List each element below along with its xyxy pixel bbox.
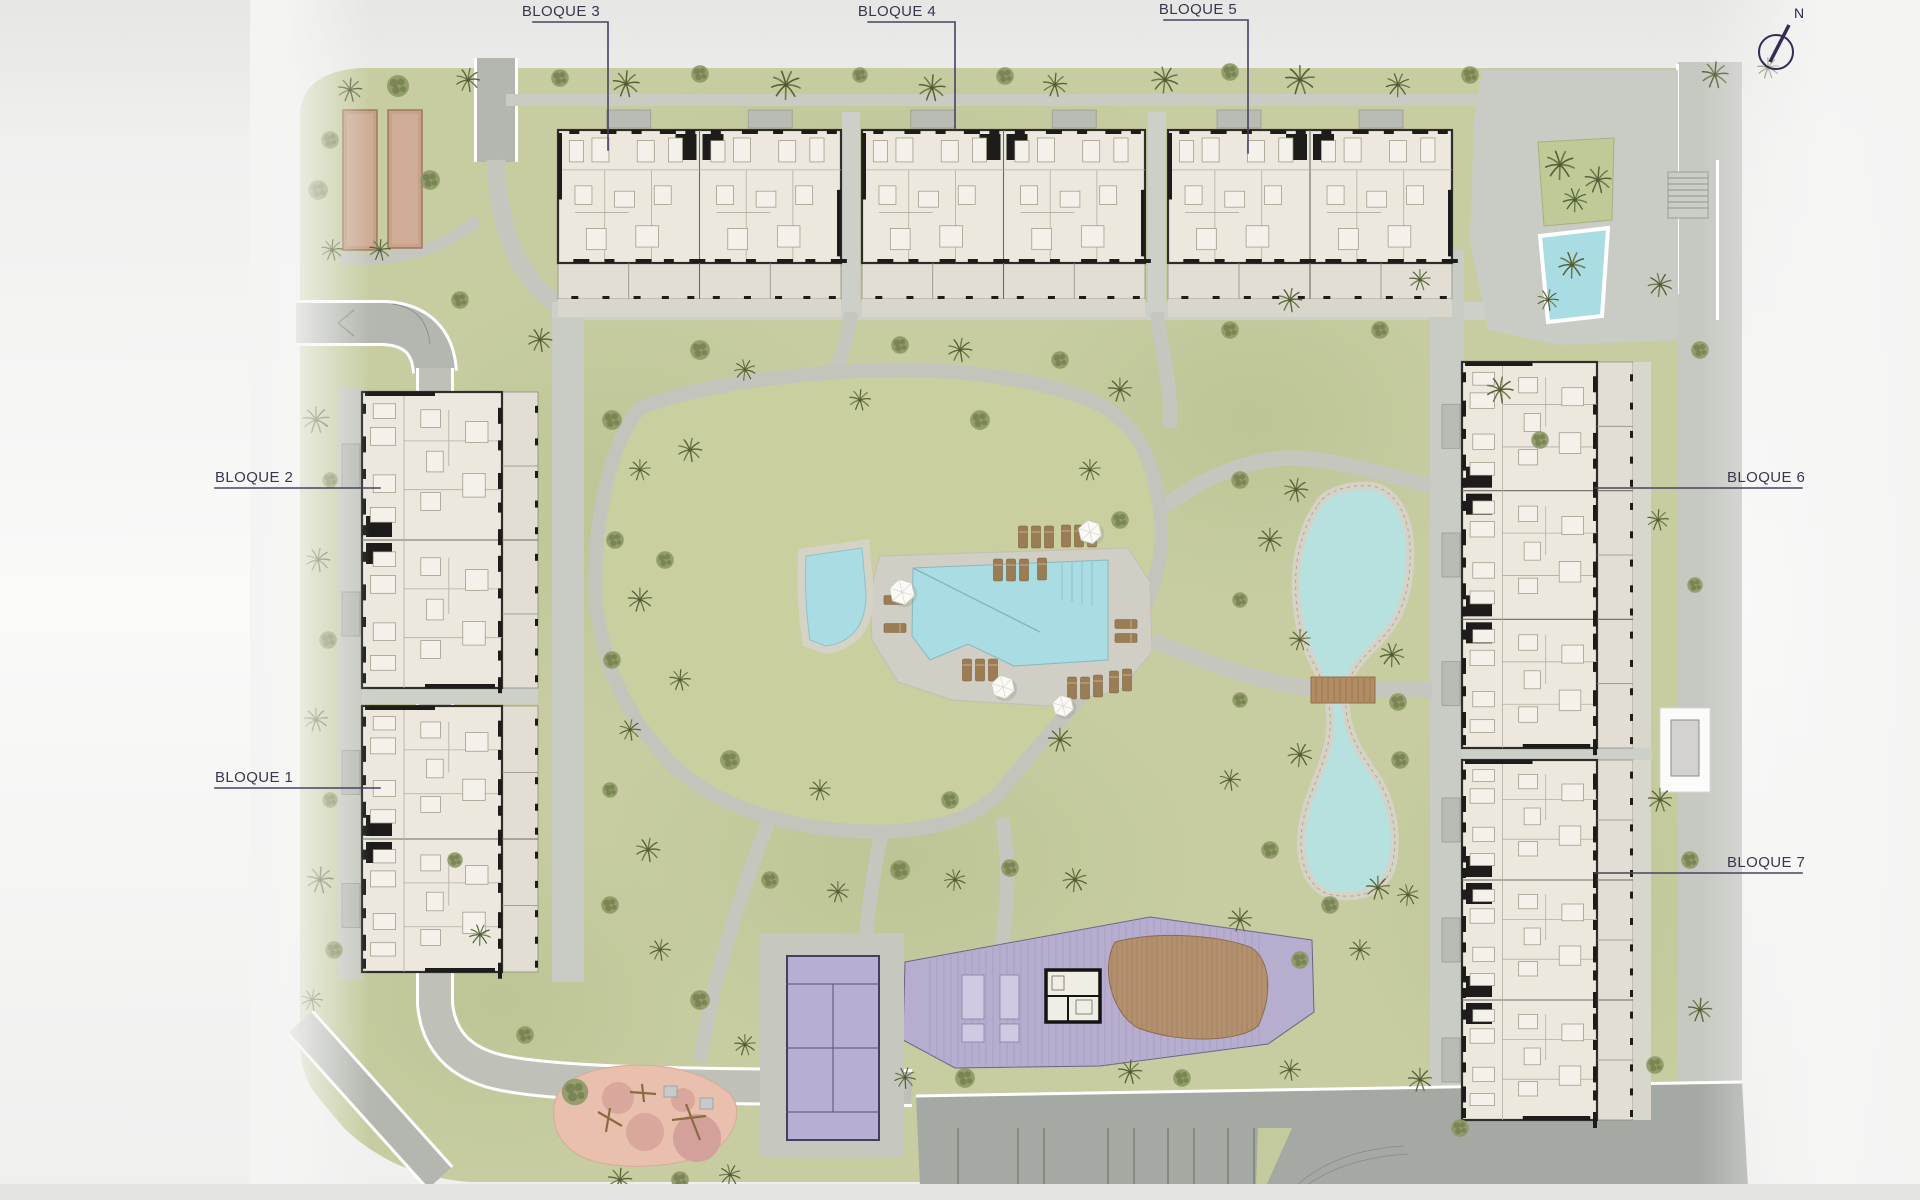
building-bloque-2 [342, 392, 538, 693]
bush-icon [606, 531, 624, 549]
bush-icon [447, 852, 462, 867]
bush-icon [690, 990, 710, 1010]
west-buildings-walk [552, 318, 584, 982]
bush-icon [551, 69, 569, 87]
label-bloque-7: BLOQUE 7 [1727, 854, 1805, 871]
site-plan: BLOQUE 3 BLOQUE 4 BLOQUE 5 BLOQUE 2 BLOQ… [0, 0, 1920, 1200]
building-bloque-5 [1168, 110, 1458, 317]
bush-icon [1461, 66, 1479, 84]
label-bloque-3: BLOQUE 3 [522, 3, 600, 20]
building-bloque-7 [1442, 760, 1651, 1128]
bush-icon [1451, 1119, 1469, 1137]
compass-north-label: N [1794, 5, 1804, 21]
bush-icon [420, 170, 440, 190]
bush-icon [1291, 951, 1309, 969]
bush-icon [1221, 321, 1239, 339]
bush-icon [451, 291, 469, 309]
bush-icon [1681, 851, 1699, 869]
building-bloque-3 [558, 110, 847, 317]
bush-icon [941, 791, 959, 809]
bush-icon [1531, 431, 1549, 449]
bottom-band [0, 1184, 1920, 1200]
bush-icon [1389, 693, 1407, 711]
wooden-bridge [1311, 677, 1375, 703]
bush-icon [1646, 1056, 1664, 1074]
bush-icon [602, 410, 622, 430]
right-fade [1700, 0, 1920, 1200]
site-plan-canvas: BLOQUE 3 BLOQUE 4 BLOQUE 5 BLOQUE 2 BLOQ… [0, 0, 1920, 1200]
playground [554, 1065, 737, 1166]
bush-icon [1261, 841, 1279, 859]
bush-icon [1232, 592, 1247, 607]
label-bloque-4: BLOQUE 4 [858, 3, 936, 20]
bush-icon [601, 896, 619, 914]
tennis-court-area [760, 933, 904, 1157]
bush-icon [955, 1068, 975, 1088]
bush-icon [1173, 1069, 1191, 1087]
bush-icon [891, 336, 909, 354]
bush-icon [387, 75, 409, 97]
label-bloque-2: BLOQUE 2 [215, 469, 293, 486]
north-pool [1540, 228, 1608, 322]
bush-icon [602, 782, 617, 797]
bush-icon [690, 340, 710, 360]
wood-deck [1108, 935, 1267, 1039]
label-bloque-1: BLOQUE 1 [215, 769, 293, 786]
building-bloque-1 [342, 706, 538, 979]
bush-icon [852, 67, 867, 82]
building-bloque-4 [862, 110, 1151, 317]
bush-icon [691, 65, 709, 83]
bush-icon [1231, 471, 1249, 489]
bush-icon [1051, 351, 1069, 369]
bush-icon [1232, 692, 1247, 707]
bush-icon [1221, 63, 1239, 81]
label-bloque-6: BLOQUE 6 [1727, 469, 1805, 486]
bush-icon [1111, 511, 1129, 529]
bush-icon [562, 1079, 588, 1105]
bush-icon [603, 651, 621, 669]
bush-icon [1371, 321, 1389, 339]
bush-icon [890, 860, 910, 880]
bush-icon [1321, 896, 1339, 914]
left-fade [250, 0, 370, 1200]
northeast-plaza [1470, 70, 1708, 345]
bush-icon [970, 410, 990, 430]
pool-house [1046, 970, 1100, 1022]
bush-icon [1391, 751, 1409, 769]
bush-icon [996, 67, 1014, 85]
bush-icon [656, 551, 674, 569]
building-bloque-6 [1442, 362, 1651, 755]
bush-icon [1001, 859, 1019, 877]
bush-icon [720, 750, 740, 770]
label-bloque-5: BLOQUE 5 [1159, 1, 1237, 18]
bush-icon [761, 871, 779, 889]
bush-icon [516, 1026, 534, 1044]
